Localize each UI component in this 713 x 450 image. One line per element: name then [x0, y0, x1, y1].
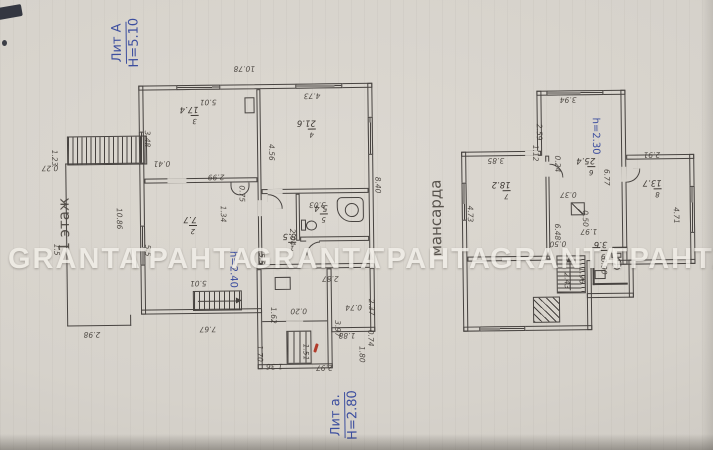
wall: [613, 259, 695, 265]
caption-building-main: Лит А Н=5.10: [109, 15, 146, 71]
plan-drawing-layer: Лит А Н=5.10 Лит а. Н=2.80 1 этаж мансар…: [0, 0, 713, 450]
window: [295, 83, 342, 89]
room-number: 4: [307, 128, 316, 138]
photo-shadow-right: [701, 0, 713, 450]
wall: [138, 86, 146, 315]
door-arc: [306, 241, 320, 255]
floor-plan-scan: Лит А Н=5.10 Лит а. Н=2.80 1 этаж мансар…: [0, 0, 713, 450]
door-arc: [626, 169, 640, 183]
window: [176, 85, 220, 91]
room-number: 9: [599, 250, 608, 260]
wall: [587, 293, 634, 299]
wall-line: [593, 283, 628, 285]
window: [690, 186, 696, 233]
door-arc: [268, 194, 283, 209]
stairs: [533, 297, 560, 323]
room-number: 2: [189, 225, 198, 235]
photo-shadow-bottom: [0, 434, 713, 450]
room-number: 6: [587, 166, 596, 176]
height-note-attic: h=2.30: [589, 115, 602, 157]
caption-building-annex-line2: Н=2.80: [345, 390, 361, 440]
attic-label: мансарда: [426, 176, 445, 260]
room-number: 7: [502, 190, 511, 200]
room-number: 8: [653, 188, 662, 198]
stairs: [193, 290, 242, 311]
door-opening: [300, 263, 315, 268]
height-note-floor1: h=2.40: [226, 248, 239, 290]
window: [368, 117, 373, 155]
toilet-bowl-symbol: [306, 220, 317, 230]
door-opening: [167, 178, 186, 183]
closet-symbol: [275, 277, 291, 290]
bathtub-symbol: [337, 197, 364, 222]
door-opening: [258, 200, 262, 216]
red-pen-mark: [313, 343, 319, 352]
room-number: 3: [190, 115, 199, 125]
caption-building-annex-line1: Лит а.: [328, 392, 346, 438]
wall-line: [67, 325, 131, 327]
caption-building-main-line2: Н=5.10: [127, 18, 143, 68]
room-number: 5: [319, 213, 328, 223]
door-opening: [286, 321, 303, 322]
window: [479, 326, 525, 332]
wall: [461, 152, 468, 332]
flue-symbol: [244, 97, 254, 113]
caption-building-main-line1: Лит А: [109, 21, 127, 64]
wall-line: [592, 249, 594, 285]
wall-line: [130, 315, 131, 326]
bathtub-drain-icon: [345, 203, 359, 217]
room-number: 1: [288, 242, 297, 252]
stairs: [67, 136, 147, 166]
wall: [467, 256, 550, 262]
